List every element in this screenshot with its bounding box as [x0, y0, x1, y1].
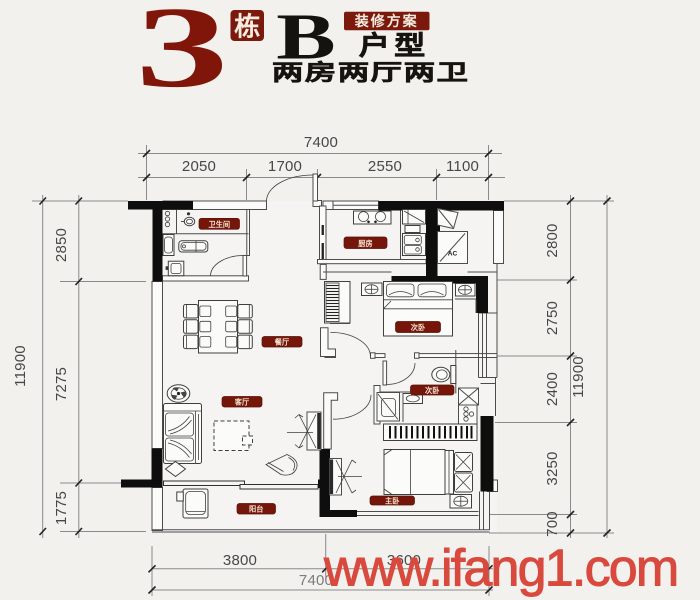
- svg-text:2550: 2550: [368, 158, 402, 175]
- svg-text:栋: 栋: [234, 12, 260, 42]
- svg-text:1100: 1100: [446, 158, 479, 175]
- svg-text:2050: 2050: [182, 158, 216, 175]
- svg-text:7400: 7400: [304, 134, 338, 151]
- svg-text:2400: 2400: [544, 372, 561, 406]
- svg-text:1775: 1775: [53, 491, 70, 525]
- svg-text:3: 3: [136, 0, 229, 111]
- svg-text:1700: 1700: [268, 158, 302, 175]
- svg-text:厨房: 厨房: [358, 239, 372, 248]
- svg-text:主卧: 主卧: [385, 496, 400, 505]
- svg-text:2800: 2800: [544, 223, 561, 257]
- svg-text:两房两厅两卫: 两房两厅两卫: [272, 60, 470, 84]
- svg-text:2750: 2750: [544, 301, 561, 335]
- svg-text:AC: AC: [448, 251, 458, 258]
- svg-text:3800: 3800: [223, 552, 257, 569]
- svg-text:www.ifang1.com: www.ifang1.com: [323, 540, 677, 598]
- svg-text:卫生间: 卫生间: [209, 220, 231, 229]
- svg-text:餐厅: 餐厅: [274, 338, 289, 347]
- svg-text:装修方案: 装修方案: [354, 13, 419, 29]
- svg-text:700: 700: [544, 511, 561, 537]
- svg-text:3250: 3250: [544, 451, 561, 485]
- svg-text:7275: 7275: [53, 367, 70, 401]
- svg-text:2850: 2850: [53, 228, 70, 262]
- svg-text:阳台: 阳台: [249, 505, 263, 514]
- svg-text:次卧: 次卧: [411, 323, 426, 332]
- svg-text:11900: 11900: [570, 356, 587, 398]
- svg-text:户型: 户型: [359, 31, 430, 61]
- svg-text:11900: 11900: [12, 345, 29, 387]
- svg-text:客厅: 客厅: [234, 398, 249, 407]
- svg-text:次卧: 次卧: [425, 386, 440, 395]
